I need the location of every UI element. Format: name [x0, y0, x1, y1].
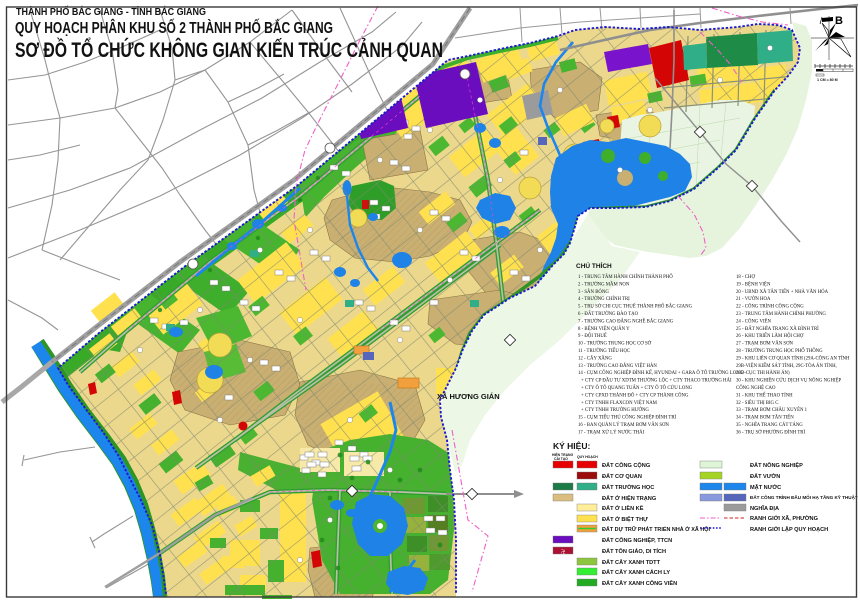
svg-text:THÀNH PHỐ BẮC GIANG - TỈNH BẮC: THÀNH PHỐ BẮC GIANG - TỈNH BẮC GIANG: [16, 4, 206, 18]
svg-text:ĐẤT CÔNG CỘNG: ĐẤT CÔNG CỘNG: [602, 461, 650, 469]
svg-text:14 - CỤM CÔNG NGHIỆP ĐÌNH KẾ,: 14 - CỤM CÔNG NGHIỆP ĐÌNH KẾ, HYUNDAI + …: [578, 370, 744, 376]
svg-text:+ CTY TNHH TRƯỜNG HƯỚNG: + CTY TNHH TRƯỜNG HƯỚNG: [581, 407, 649, 413]
svg-text:1 - TRUNG TÂM HÀNH CHÍNH THÀNH: 1 - TRUNG TÂM HÀNH CHÍNH THÀNH PHỐ: [578, 274, 673, 280]
svg-text:17 - TRẠM XỬ LÝ NƯỚC THẢI: 17 - TRẠM XỬ LÝ NƯỚC THẢI: [578, 429, 645, 435]
svg-text:ĐẤT CÂY XANH CÔNG VIÊN: ĐẤT CÂY XANH CÔNG VIÊN: [602, 579, 677, 587]
svg-text:QUY HOẠCH: QUY HOẠCH: [577, 455, 598, 459]
svg-text:30 - KHU NGHIÊN CỨU DỊCH VỤ NÔ: 30 - KHU NGHIÊN CỨU DỊCH VỤ NÔNG NGHIỆP: [736, 378, 841, 384]
svg-text:ĐẤT NÔNG NGHIỆP: ĐẤT NÔNG NGHIỆP: [750, 461, 803, 469]
svg-text:34 - TRẠM BƠM TÂN TIẾN: 34 - TRẠM BƠM TÂN TIẾN: [736, 415, 794, 421]
svg-text:ĐẤT Ở BIỆT THỰ: ĐẤT Ở BIỆT THỰ: [602, 515, 648, 523]
svg-text:26 - KHU TRIỂN LÃM HỘI CHỢ: 26 - KHU TRIỂN LÃM HỘI CHỢ: [736, 333, 804, 339]
svg-text:+ CTY TNHH FLAXCON VIỆT NAM: + CTY TNHH FLAXCON VIỆT NAM: [581, 400, 658, 406]
svg-text:SƠ ĐỒ TỔ CHỨC KHÔNG GIAN KIẾN: SƠ ĐỒ TỔ CHỨC KHÔNG GIAN KIẾN TRÚC CẢNH …: [15, 37, 443, 62]
svg-text:33 - TRẠM BƠM CHÂU XUYÊN 1: 33 - TRẠM BƠM CHÂU XUYÊN 1: [736, 407, 808, 413]
svg-text:ĐẤT Ở LIỀN KỀ: ĐẤT Ở LIỀN KỀ: [602, 505, 644, 512]
svg-text:ĐẤT CÂY XANH CÁCH LY: ĐẤT CÂY XANH CÁCH LY: [602, 569, 670, 576]
svg-text:ĐẤT CÔNG NGHIỆP, TTCN: ĐẤT CÔNG NGHIỆP, TTCN: [602, 536, 672, 544]
svg-text:CẢI TẠO: CẢI TẠO: [554, 456, 568, 461]
svg-text:29B-VIỆN KIỂM SÁT TỈNH, 29C-TÒ: 29B-VIỆN KIỂM SÁT TỈNH, 29C-TÒA ÁN TỈNH,: [736, 363, 837, 369]
svg-text:29 - KHU LIÊN CƠ QUAN TỈNH (29: 29 - KHU LIÊN CƠ QUAN TỈNH (29A-CÔNG AN …: [736, 355, 850, 361]
svg-text:ĐẤT TRƯỜNG HỌC: ĐẤT TRƯỜNG HỌC: [602, 483, 654, 491]
svg-text:21 - VƯỜN HOA: 21 - VƯỜN HOA: [736, 296, 771, 302]
svg-text:CHÚ THÍCH: CHÚ THÍCH: [576, 261, 612, 270]
svg-text:11 - TRƯỜNG TIỂU HỌC: 11 - TRƯỜNG TIỂU HỌC: [578, 348, 630, 354]
svg-text:NGHĨA ĐỊA: NGHĨA ĐỊA: [750, 505, 779, 512]
svg-text:B: B: [835, 15, 843, 27]
svg-text:9 - ĐỘI THUẾ: 9 - ĐỘI THUẾ: [578, 333, 607, 339]
svg-text:10 - TRƯỜNG TRUNG HỌC CƠ SỞ: 10 - TRƯỜNG TRUNG HỌC CƠ SỞ: [578, 341, 652, 347]
svg-text:ĐẤT VƯỜN: ĐẤT VƯỜN: [750, 472, 780, 480]
svg-text:32 - SIÊU THỊ BIG C: 32 - SIÊU THỊ BIG C: [736, 400, 778, 406]
svg-text:XÃ HƯƠNG GIÁN: XÃ HƯƠNG GIÁN: [437, 392, 500, 401]
svg-text:2 - TRƯỜNG MẦM NON: 2 - TRƯỜNG MẦM NON: [578, 281, 630, 287]
svg-text:3 - SÂN BÓNG: 3 - SÂN BÓNG: [578, 289, 609, 295]
svg-text:31 - KHU THỂ THAO TỈNH: 31 - KHU THỂ THAO TỈNH: [736, 392, 793, 398]
svg-text:CÔNG NGHỆ CAO: CÔNG NGHỆ CAO: [736, 385, 776, 391]
svg-text:15 - CỤM TIỂU THỦ CÔNG NGHIỆP: 15 - CỤM TIỂU THỦ CÔNG NGHIỆP ĐÌNH TRÌ: [578, 415, 677, 421]
svg-text:ĐẤT CÔNG TRÌNH ĐẦU MỐI HẠ TẦNG: ĐẤT CÔNG TRÌNH ĐẦU MỐI HẠ TẦNG KỸ THUẬT: [750, 493, 858, 500]
svg-text:36 - TRỤ SỞ PHƯỜNG ĐÌNH TRÌ: 36 - TRỤ SỞ PHƯỜNG ĐÌNH TRÌ: [736, 429, 806, 435]
svg-text:1 CM = 80 M: 1 CM = 80 M: [817, 78, 838, 82]
svg-text:MẶT NƯỚC: MẶT NƯỚC: [750, 483, 781, 491]
svg-text:RANH GIỚI XÃ, PHƯỜNG: RANH GIỚI XÃ, PHƯỜNG: [750, 514, 818, 522]
svg-text:23 - TRUNG TÂM HÀNH CHÍNH PHƯỜ: 23 - TRUNG TÂM HÀNH CHÍNH PHƯỜNG: [736, 311, 826, 317]
svg-text:ĐẤT TÔN GIÁO, DI TÍCH: ĐẤT TÔN GIÁO, DI TÍCH: [602, 547, 666, 555]
svg-text:28 - TRƯỜNG TRUNG HỌC PHỔ THÔN: 28 - TRƯỜNG TRUNG HỌC PHỔ THÔNG: [736, 348, 823, 354]
svg-text:+ CTY CPXD THÀNH ĐÔ + CTY CP T: + CTY CPXD THÀNH ĐÔ + CTY CP THÀNH CÔNG: [581, 392, 689, 398]
svg-text:ĐẤT DỰ TRỮ PHÁT TRIỂN NHÀ Ở XÃ: ĐẤT DỰ TRỮ PHÁT TRIỂN NHÀ Ở XÃ HỘI: [602, 525, 710, 533]
svg-text:16 - BAN QUẢN LÝ TRẠM BƠM VÂN: 16 - BAN QUẢN LÝ TRẠM BƠM VÂN SƠN: [578, 422, 670, 428]
svg-text:7 - TRƯỜNG CAO ĐẲNG NGHỀ BẮC G: 7 - TRƯỜNG CAO ĐẲNG NGHỀ BẮC GIANG: [578, 317, 674, 324]
svg-text:ĐẤT CÂY XANH TDTT: ĐẤT CÂY XANH TDTT: [602, 559, 661, 566]
svg-text:4 - TRƯỜNG CHÍNH TRỊ: 4 - TRƯỜNG CHÍNH TRỊ: [578, 296, 630, 302]
svg-text:25 - ĐẤT NGHĨA TRANG XÃ ĐÌNH T: 25 - ĐẤT NGHĨA TRANG XÃ ĐÌNH TRÌ: [736, 326, 819, 332]
svg-text:ĐẤT Ở HIỆN TRẠNG: ĐẤT Ở HIỆN TRẠNG: [602, 494, 656, 502]
svg-text:+ CTY Ô TÔ QUANG TUẤN + CTY Ô: + CTY Ô TÔ QUANG TUẤN + CTY Ô TÔ CỬU LON…: [581, 385, 693, 391]
svg-text:35 - NGHĨA TRANG CÁT TÁNG: 35 - NGHĨA TRANG CÁT TÁNG: [736, 422, 803, 428]
svg-text:5 - TRỤ SỞ CHI CỤC THUẾ THÀNH: 5 - TRỤ SỞ CHI CỤC THUẾ THÀNH PHỐ BẮC GI…: [578, 303, 693, 310]
svg-text:22 - CÔNG TRÌNH CÔNG CỘNG: 22 - CÔNG TRÌNH CÔNG CỘNG: [736, 304, 804, 310]
svg-text:KÝ HIỆU:: KÝ HIỆU:: [553, 440, 590, 451]
svg-text:29D-CỤC THI HÀNH ÁN): 29D-CỤC THI HÀNH ÁN): [736, 370, 790, 376]
svg-text:8 - BỆNH VIỆN QUÂN Y: 8 - BỆNH VIỆN QUÂN Y: [578, 326, 630, 332]
svg-text:12 - CÂY XĂNG: 12 - CÂY XĂNG: [578, 355, 612, 361]
svg-text:24 - CÔNG VIÊN: 24 - CÔNG VIÊN: [736, 318, 771, 324]
svg-text:ĐẤT CƠ QUAN: ĐẤT CƠ QUAN: [602, 473, 642, 480]
svg-text:19 - BỆNH VIỆN: 19 - BỆNH VIỆN: [736, 281, 771, 287]
svg-text:13 - TRƯỜNG CAO ĐẲNG VIỆT HÀN: 13 - TRƯỜNG CAO ĐẲNG VIỆT HÀN: [578, 363, 657, 369]
svg-text:+ CTY CP ĐẦU TƯ XDTM THƯỜNG LỘ: + CTY CP ĐẦU TƯ XDTM THƯỜNG LỘC + CTY TH…: [581, 378, 732, 384]
svg-text:RANH GIỚI LẬP QUY HOẠCH: RANH GIỚI LẬP QUY HOẠCH: [750, 525, 828, 533]
svg-text:27 - TRẠM BƠM VÂN SƠN: 27 - TRẠM BƠM VÂN SƠN: [736, 341, 794, 347]
svg-text:20 - UBND XÃ TÂN TIẾN + NHÀ VĂ: 20 - UBND XÃ TÂN TIẾN + NHÀ VĂN HÓA: [736, 289, 829, 295]
svg-text:QUY HOẠCH PHÂN KHU SỐ 2 THÀNH: QUY HOẠCH PHÂN KHU SỐ 2 THÀNH PHỐ BẮC GI…: [15, 17, 333, 37]
svg-text:18 - CHỢ: 18 - CHỢ: [736, 275, 755, 280]
svg-text:6 - ĐẤT TRƯỜNG ĐÀO TẠO: 6 - ĐẤT TRƯỜNG ĐÀO TẠO: [578, 311, 639, 317]
